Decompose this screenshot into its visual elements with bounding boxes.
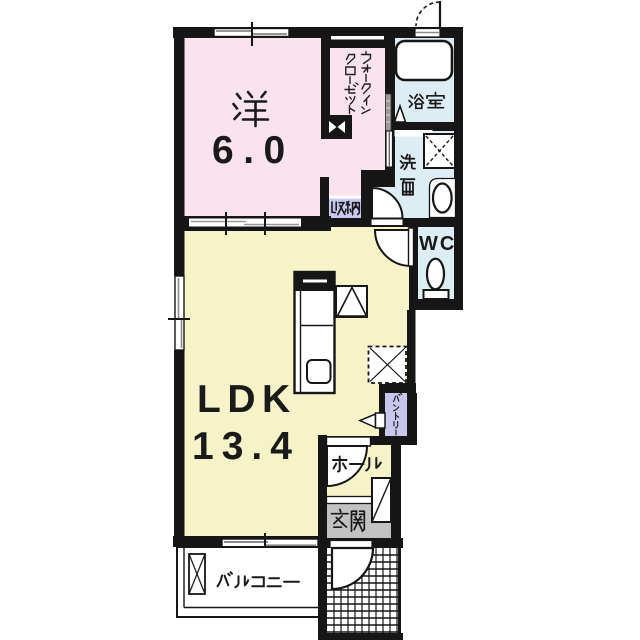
svg-text:6.0: 6.0	[212, 129, 295, 172]
svg-text:WC: WC	[419, 233, 456, 255]
svg-text:13.4: 13.4	[192, 425, 300, 468]
svg-text:LDK: LDK	[197, 378, 297, 421]
